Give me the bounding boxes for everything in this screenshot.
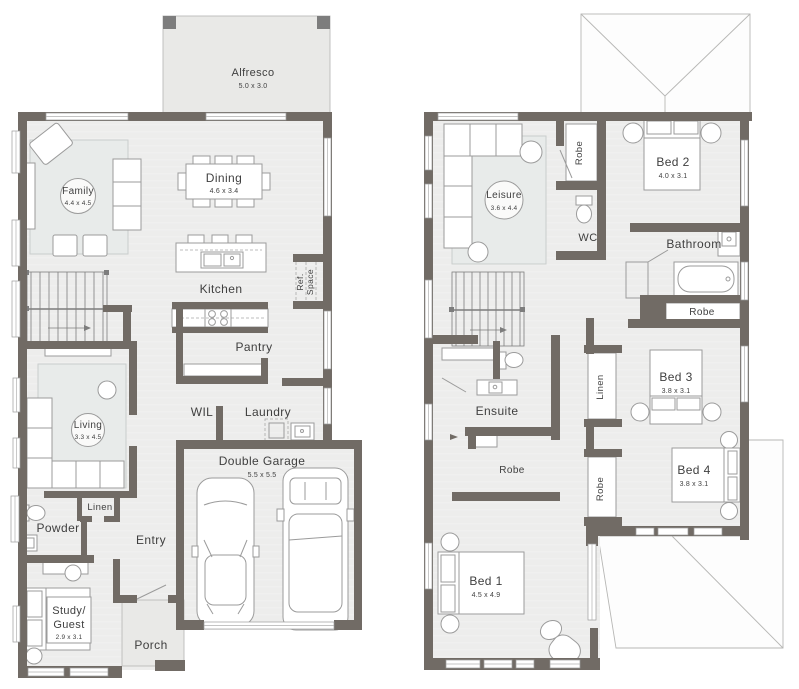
- bathroom-label: Bathroom: [666, 237, 721, 251]
- ottoman: [53, 235, 77, 256]
- living-sofa: [52, 461, 124, 488]
- car-suv: [277, 468, 354, 630]
- dining-chair: [237, 199, 254, 207]
- bed4-dims: 3.8 x 3.1: [680, 481, 709, 488]
- study-label-1: Study/: [52, 605, 86, 617]
- bed3-dims: 3.8 x 3.1: [662, 388, 691, 395]
- alfresco-dims: 5.0 x 3.0: [239, 83, 268, 90]
- living-label: Living: [74, 420, 103, 431]
- leisure-label: Leisure: [486, 190, 522, 201]
- alfresco-post: [163, 16, 176, 29]
- leisure-sofa: [444, 124, 522, 156]
- garage-dims: 5.5 x 5.5: [248, 472, 277, 479]
- leisure-dims: 3.6 x 4.4: [491, 205, 518, 212]
- powder-label: Powder: [36, 521, 79, 535]
- bed4-label: Bed 4: [677, 463, 710, 477]
- porch-slab: [122, 600, 184, 666]
- entry-label: Entry: [136, 533, 166, 547]
- wc-label: WC: [578, 232, 597, 244]
- alfresco-post: [317, 16, 330, 29]
- family-dims: 4.4 x 4.5: [65, 200, 92, 207]
- upper-floor-plan: Leisure 3.6 x 4.4 Robe Bed 2 4.0 x 3.1 W…: [424, 14, 783, 670]
- car-sedan: [192, 478, 259, 626]
- bed2-dims: 4.0 x 3.1: [659, 173, 688, 180]
- bedside-table: [701, 123, 721, 143]
- leisure-sofa: [444, 156, 472, 248]
- dining-label: Dining: [206, 171, 242, 185]
- side-table: [468, 242, 488, 262]
- bed3-label: Bed 3: [659, 370, 692, 384]
- laundry-label: Laundry: [245, 405, 291, 419]
- study-dims: 2.9 x 3.1: [56, 634, 83, 641]
- dining-chair: [193, 199, 210, 207]
- stool: [188, 235, 204, 243]
- linen-label: Linen: [87, 502, 112, 513]
- dining-chair: [215, 199, 232, 207]
- toilet-bowl: [505, 353, 523, 368]
- shower-shelf: [442, 348, 494, 360]
- ottoman: [83, 235, 107, 256]
- family-label: Family: [62, 186, 94, 197]
- bedside-table: [631, 403, 649, 421]
- pantry-label: Pantry: [235, 340, 272, 354]
- garage-label: Double Garage: [219, 454, 306, 468]
- bedside-table: [721, 503, 738, 520]
- side-table: [26, 648, 42, 664]
- dining-chair: [215, 156, 232, 164]
- alfresco-label: Alfresco: [232, 67, 275, 79]
- toilet-bowl: [27, 506, 45, 521]
- roof-outline-top: [581, 14, 750, 118]
- living-sofa: [27, 398, 52, 488]
- bed1-dims: 4.5 x 4.9: [472, 592, 501, 599]
- bedside-table: [703, 403, 721, 421]
- bed-3: [650, 350, 702, 424]
- bedside-table: [721, 432, 738, 449]
- robe-bed4-label: Robe: [595, 477, 606, 501]
- dining-dims: 4.6 x 3.4: [210, 188, 239, 195]
- floorplan-page: Alfresco 5.0 x 3.0 Family 4.4 x 4.5 Dini…: [0, 0, 799, 689]
- porch-label: Porch: [134, 638, 167, 652]
- stool: [236, 235, 252, 243]
- bedside-table: [623, 123, 643, 143]
- dining-chair: [178, 173, 186, 190]
- stool: [212, 235, 228, 243]
- toilet-bowl: [577, 205, 592, 223]
- desk-chair: [65, 565, 81, 581]
- pantry-shelf: [184, 364, 264, 376]
- living-dims: 3.3 x 4.5: [75, 434, 102, 441]
- ref-space-label-2: Space: [305, 269, 315, 295]
- bedside-table: [441, 533, 459, 551]
- kitchen-label: Kitchen: [200, 282, 243, 296]
- dining-chair: [237, 156, 254, 164]
- side-table: [520, 141, 542, 163]
- side-table: [98, 381, 116, 399]
- robe-bathroom-label: Robe: [689, 307, 715, 318]
- floorplan-drawing: Alfresco 5.0 x 3.0 Family 4.4 x 4.5 Dini…: [0, 0, 799, 689]
- bed1-label: Bed 1: [469, 574, 502, 588]
- toilet-tank: [576, 196, 592, 205]
- study-label-2: Guest: [53, 619, 84, 631]
- robe-ensuite-label: Robe: [499, 465, 525, 476]
- family-sofa: [113, 159, 141, 230]
- ref-space-label-1: Ref.: [295, 273, 305, 290]
- bedside-table: [441, 615, 459, 633]
- wil-label: WIL: [191, 405, 214, 419]
- ground-floor-plan: Alfresco 5.0 x 3.0 Family 4.4 x 4.5 Dini…: [11, 16, 362, 678]
- robe-top-label: Robe: [574, 141, 585, 165]
- bed2-label: Bed 2: [656, 155, 689, 169]
- ensuite-label: Ensuite: [476, 404, 519, 418]
- linen-upper-label: Linen: [595, 374, 606, 399]
- dining-chair: [193, 156, 210, 164]
- dining-chair: [262, 173, 270, 190]
